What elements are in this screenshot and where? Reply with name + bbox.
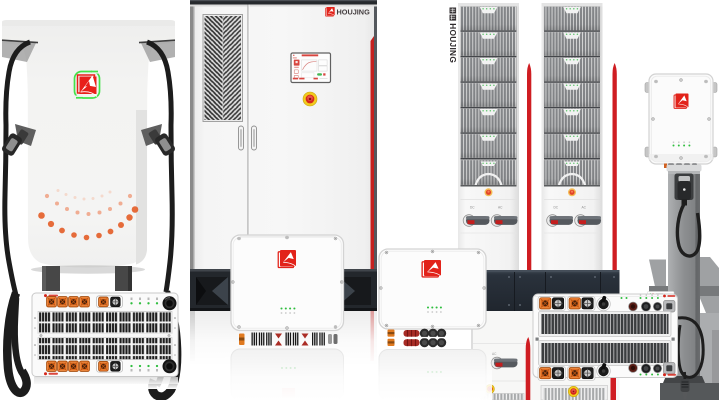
svg-text:HOUJING: HOUJING	[448, 23, 458, 63]
svg-text:HOUJING: HOUJING	[337, 7, 371, 16]
svg-text:AC: AC	[492, 352, 497, 356]
svg-text:AC: AC	[582, 206, 587, 210]
svg-text:AC: AC	[498, 206, 503, 210]
svg-text:DC: DC	[554, 206, 559, 210]
svg-text:DC: DC	[470, 206, 475, 210]
